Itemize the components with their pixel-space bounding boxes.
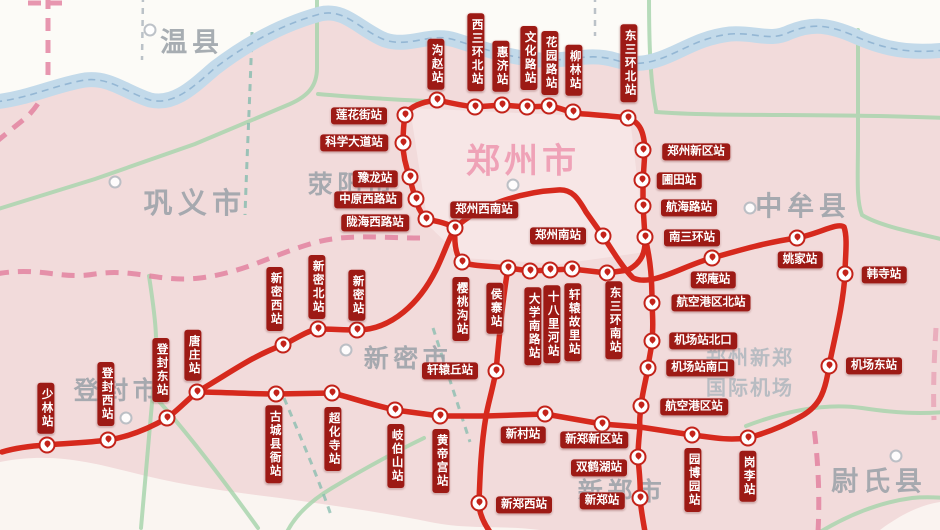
station-label: 文化路站	[520, 26, 537, 90]
station-label: 郑州西南站	[450, 201, 518, 218]
station-label: 樱桃沟站	[452, 277, 469, 341]
station-label: 东三环南站	[605, 281, 622, 359]
station-label: 中原西路站	[334, 191, 402, 208]
station-label: 郑州南站	[530, 227, 586, 244]
station-label: 姚家站	[778, 251, 823, 268]
station-label: 西三环北站	[467, 13, 484, 91]
station-label: 侯寨站	[486, 283, 503, 334]
map-canvas: 温县巩义市荥阳市郑州市中牟县新密市登封市新郑市尉氏县郑州新郑国际机场 沟赵站西三…	[0, 0, 940, 530]
station-label: 郑庵站	[691, 271, 736, 288]
station-label: 沟赵站	[427, 39, 444, 90]
station-label: 新密北站	[308, 255, 325, 319]
station-label: 新郑西站	[496, 496, 552, 513]
station-label: 古城县衙站	[265, 405, 282, 483]
station-label: 机场站南口	[666, 359, 734, 376]
station-label: 唐庄站	[184, 330, 201, 381]
station-label: 岗李站	[739, 451, 756, 502]
station-label: 轩辕故里站	[564, 283, 581, 361]
station-label: 航空港区北站	[672, 294, 751, 311]
station-label: 郑州新区站	[662, 143, 730, 160]
station-label: 新郑新区站	[560, 431, 628, 448]
station-label: 东三环北站	[620, 24, 637, 102]
station-label: 黄帝宫站	[432, 429, 449, 493]
station-label: 南三环站	[664, 229, 720, 246]
station-label: 新村站	[501, 426, 546, 443]
station-label: 新郑站	[580, 492, 625, 509]
station-label: 科学大道站	[320, 134, 388, 151]
station-label: 大学南路站	[524, 287, 541, 365]
station-label: 航海路站	[661, 199, 717, 216]
station-label: 十八里河站	[543, 285, 560, 363]
station-label: 园博园站	[684, 448, 701, 512]
station-label: 双鹤湖站	[571, 459, 627, 476]
station-label: 机场站北口	[669, 332, 737, 349]
station-label: 超化寺站	[324, 407, 341, 471]
station-label: 新密站	[348, 270, 365, 321]
station-label: 新密西站	[266, 267, 283, 331]
station-label: 岐伯山站	[387, 424, 404, 488]
station-label: 莲花街站	[331, 107, 387, 124]
station-label: 航空港区站	[660, 398, 728, 415]
station-label: 花园路站	[541, 31, 558, 95]
station-label: 圃田站	[657, 172, 702, 189]
station-label: 登封东站	[152, 338, 169, 402]
station-label: 少林站	[37, 383, 54, 434]
station-label: 惠济站	[492, 41, 509, 92]
station-label: 韩寺站	[862, 266, 907, 283]
station-label: 轩辕丘站	[422, 362, 478, 379]
station-label: 豫龙站	[353, 170, 398, 187]
station-label: 柳林站	[565, 45, 582, 96]
station-label: 陇海西路站	[341, 214, 409, 231]
station-label-layer: 沟赵站西三环北站惠济站文化路站花园路站柳林站东三环北站郑州新区站圃田站航海路站南…	[0, 0, 940, 530]
station-label: 机场东站	[846, 357, 902, 374]
station-label: 登封西站	[97, 362, 114, 426]
